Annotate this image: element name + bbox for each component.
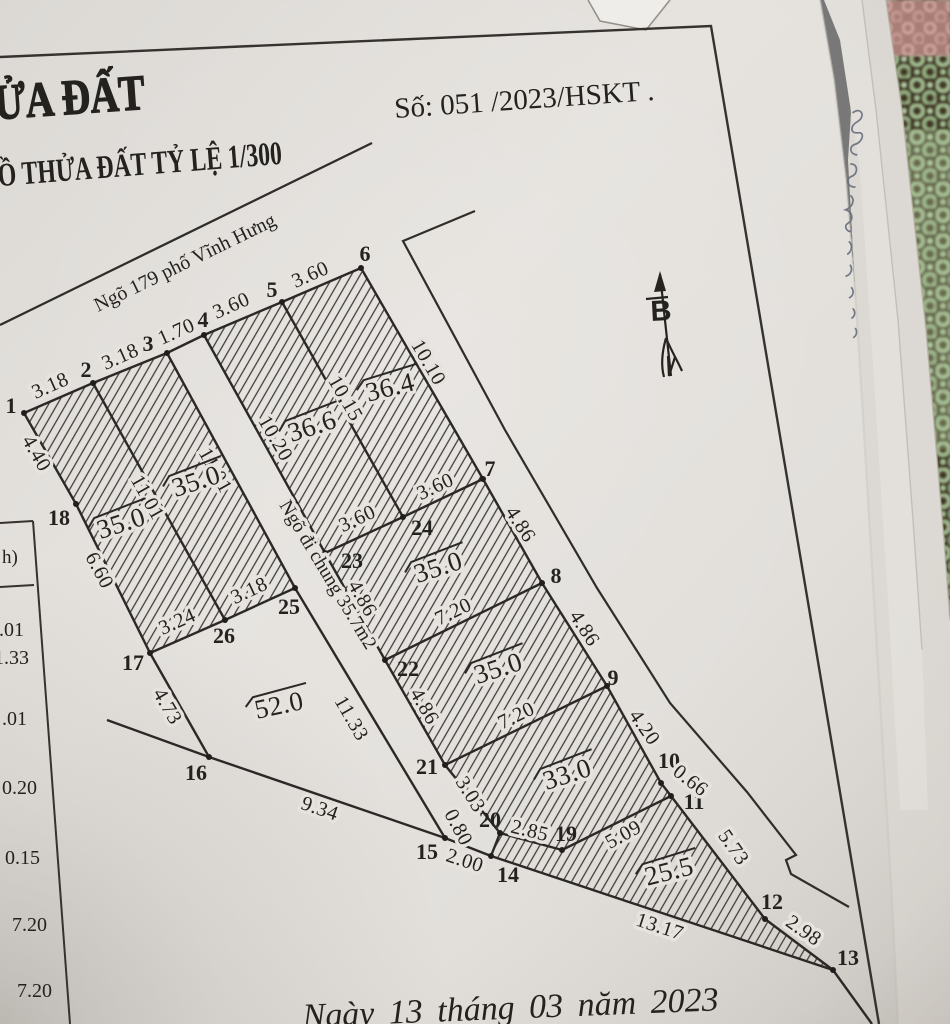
svg-text:.01: .01 — [2, 708, 27, 730]
svg-text:18: 18 — [48, 505, 70, 530]
svg-text:9: 9 — [608, 665, 619, 690]
svg-text:.01: .01 — [0, 619, 24, 641]
svg-text:23: 23 — [341, 548, 363, 573]
svg-text:15: 15 — [416, 839, 438, 864]
svg-text:h): h) — [2, 547, 18, 568]
svg-text:7: 7 — [485, 456, 496, 481]
svg-text:0.15: 0.15 — [5, 847, 40, 869]
svg-text:1.33: 1.33 — [0, 647, 29, 669]
svg-text:2: 2 — [81, 357, 92, 382]
svg-text:7.20: 7.20 — [17, 980, 52, 1002]
svg-text:14: 14 — [497, 862, 519, 887]
svg-text:25: 25 — [278, 594, 300, 619]
svg-text:4: 4 — [198, 307, 209, 332]
svg-text:8: 8 — [551, 563, 562, 588]
svg-text:20: 20 — [479, 807, 501, 832]
svg-text:0.20: 0.20 — [2, 777, 37, 799]
svg-text:16: 16 — [185, 760, 207, 785]
svg-text:5: 5 — [267, 277, 278, 302]
svg-text:22: 22 — [397, 656, 419, 681]
svg-text:24: 24 — [411, 515, 433, 540]
svg-text:7.20: 7.20 — [12, 914, 47, 936]
svg-text:B: B — [650, 295, 673, 328]
svg-text:13: 13 — [837, 945, 859, 970]
svg-text:ỬA ĐẤT: ỬA ĐẤT — [0, 65, 147, 131]
svg-text:3: 3 — [143, 331, 154, 356]
svg-text:12: 12 — [761, 889, 783, 914]
svg-text:19: 19 — [555, 821, 577, 846]
svg-text:26: 26 — [213, 623, 235, 648]
svg-text:21: 21 — [416, 754, 438, 779]
svg-text:17: 17 — [122, 650, 144, 675]
svg-text:1: 1 — [6, 393, 17, 418]
svg-text:6: 6 — [360, 241, 371, 266]
